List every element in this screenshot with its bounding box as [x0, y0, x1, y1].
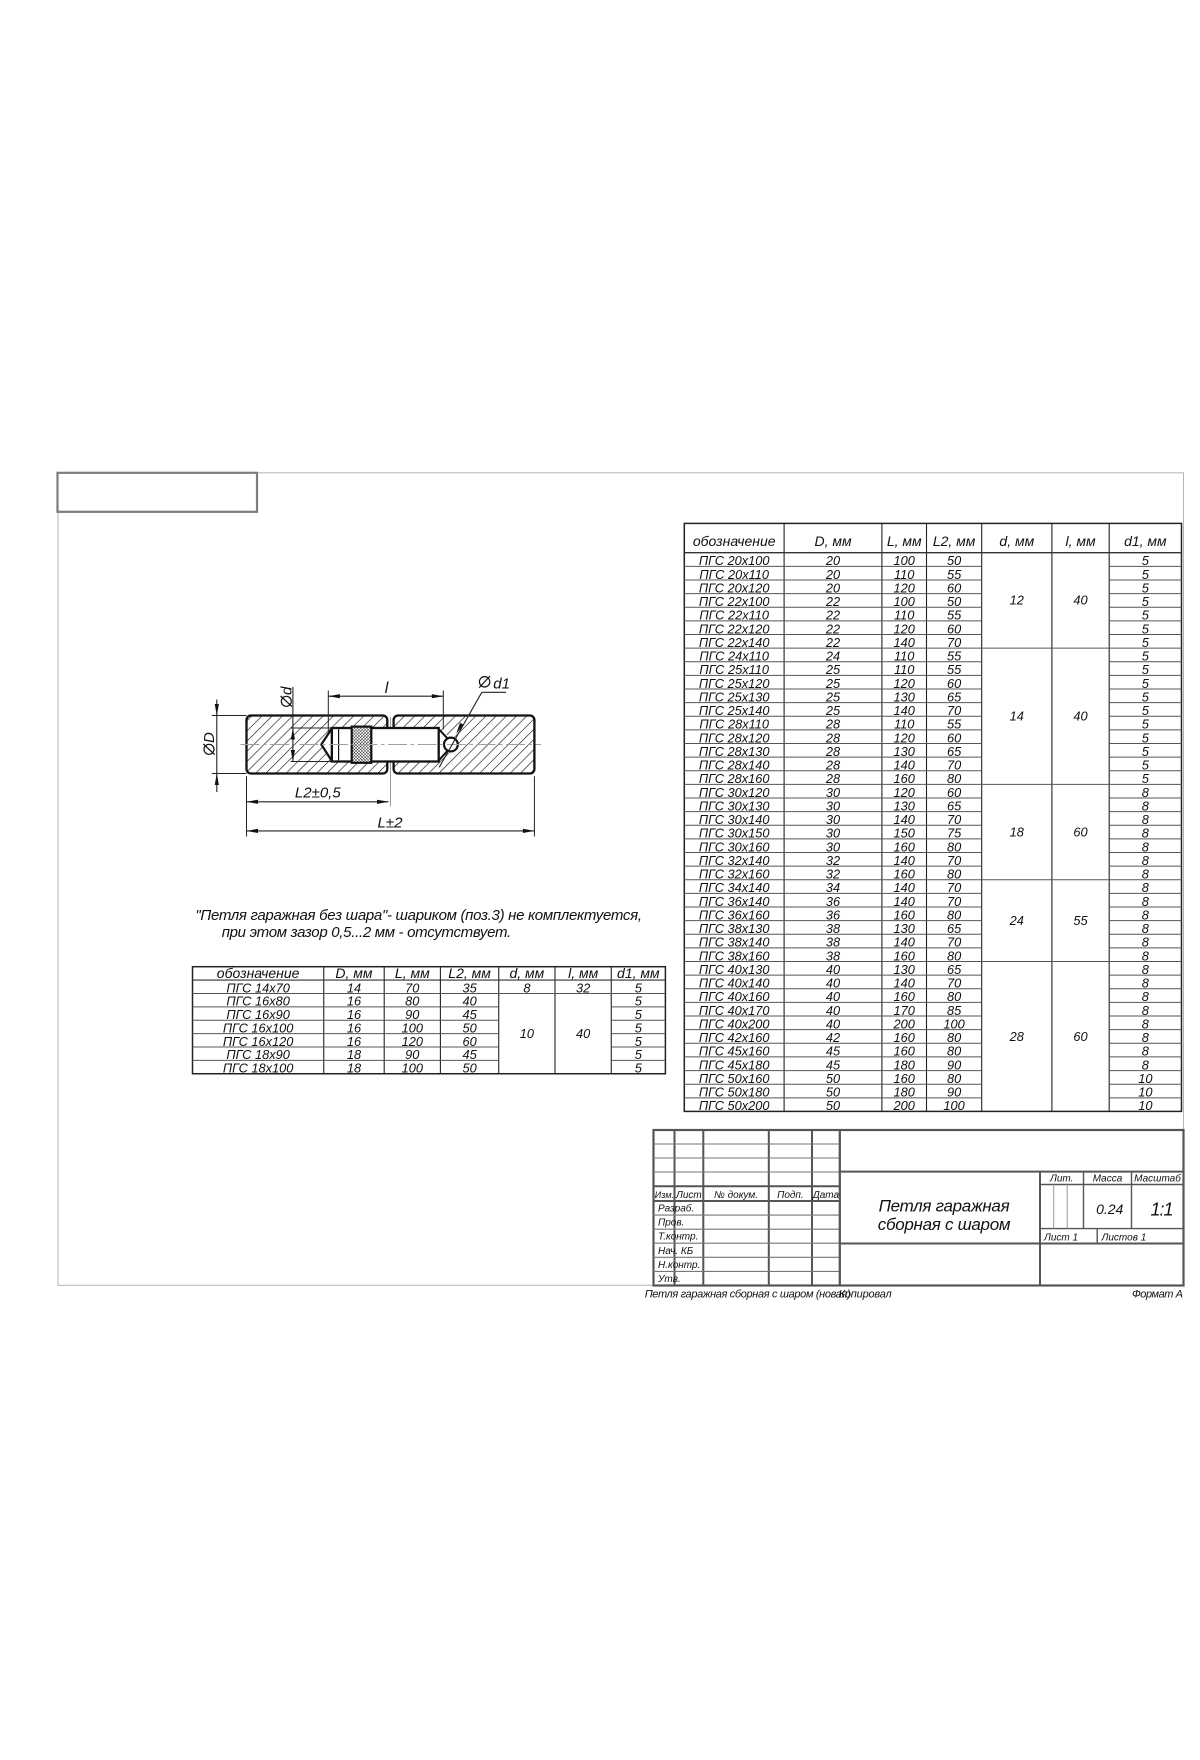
- svg-text:Петля гаражная: Петля гаражная: [879, 1196, 1010, 1215]
- svg-text:Лист: Лист: [675, 1190, 702, 1201]
- svg-text:Копировал: Копировал: [839, 1289, 892, 1301]
- svg-text:сборная с шаром: сборная с шаром: [878, 1215, 1011, 1234]
- svg-text:5: 5: [635, 1061, 643, 1076]
- svg-text:D, мм: D, мм: [335, 965, 372, 981]
- svg-text:d, мм: d, мм: [509, 965, 544, 981]
- svg-text:40: 40: [1073, 709, 1088, 724]
- svg-text:28: 28: [1009, 1029, 1025, 1044]
- svg-text:l, мм: l, мм: [1066, 533, 1096, 549]
- svg-text:обозначение: обозначение: [217, 965, 300, 981]
- svg-text:200: 200: [893, 1098, 916, 1113]
- svg-text:50: 50: [826, 1098, 841, 1113]
- svg-text:Пров.: Пров.: [658, 1218, 684, 1229]
- svg-text:24: 24: [1009, 913, 1024, 928]
- svg-text:Формат А: Формат А: [1132, 1289, 1183, 1301]
- svg-text:18: 18: [1010, 824, 1025, 839]
- svg-text:Н.контр.: Н.контр.: [658, 1260, 700, 1271]
- svg-text:l, мм: l, мм: [568, 965, 598, 981]
- svg-text:Масштаб: Масштаб: [1134, 1173, 1181, 1185]
- svg-text:Т.контр.: Т.контр.: [658, 1232, 698, 1243]
- svg-text:L2, мм: L2, мм: [933, 533, 976, 549]
- svg-text:Масса: Масса: [1093, 1174, 1123, 1185]
- svg-text:Разраб.: Разраб.: [658, 1203, 694, 1215]
- svg-text:L±2: L±2: [378, 814, 404, 831]
- svg-text:d, мм: d, мм: [999, 533, 1034, 549]
- svg-text:8: 8: [523, 980, 531, 995]
- svg-text:0.24: 0.24: [1096, 1201, 1123, 1217]
- svg-text:обозначение: обозначение: [693, 533, 776, 549]
- svg-text:100: 100: [402, 1061, 424, 1076]
- svg-text:Лит.: Лит.: [1049, 1174, 1073, 1185]
- svg-text:"Петля гаражная без шара"- шар: "Петля гаражная без шара"- шариком (поз.…: [195, 907, 641, 924]
- svg-text:Подп.: Подп.: [777, 1190, 804, 1201]
- svg-text:10: 10: [520, 1026, 535, 1041]
- svg-text:L, мм: L, мм: [887, 533, 922, 549]
- svg-text:50: 50: [462, 1061, 477, 1076]
- svg-text:Утв.: Утв.: [657, 1274, 681, 1285]
- svg-text:Петля гаражная сборная с шаром: Петля гаражная сборная с шаром (новая): [645, 1289, 851, 1301]
- svg-text:D: D: [201, 732, 218, 743]
- svg-text:при этом зазор 0,5...2 мм - от: при этом зазор 0,5...2 мм - отсутствует.: [222, 924, 511, 941]
- svg-text:18: 18: [347, 1061, 362, 1076]
- svg-text:32: 32: [576, 980, 590, 995]
- svg-text:12: 12: [1010, 593, 1024, 608]
- svg-text:60: 60: [1073, 824, 1088, 839]
- svg-text:1:1: 1:1: [1150, 1199, 1172, 1219]
- svg-text:d1: d1: [493, 676, 510, 693]
- svg-text:l: l: [385, 680, 389, 697]
- svg-text:Лист 1: Лист 1: [1043, 1233, 1078, 1244]
- svg-text:Листов 1: Листов 1: [1101, 1233, 1147, 1244]
- svg-text:40: 40: [576, 1026, 591, 1041]
- svg-text:60: 60: [1073, 1029, 1088, 1044]
- svg-text:ПГС 50x200: ПГС 50x200: [699, 1098, 770, 1113]
- svg-text:L2±0,5: L2±0,5: [295, 784, 341, 801]
- svg-text:ПГС 18x100: ПГС 18x100: [223, 1061, 294, 1076]
- svg-text:d1, мм: d1, мм: [617, 965, 660, 981]
- svg-text:40: 40: [1073, 593, 1088, 608]
- svg-text:55: 55: [1073, 913, 1088, 928]
- svg-text:d1, мм: d1, мм: [1124, 533, 1167, 549]
- svg-text:№ докум.: № докум.: [714, 1190, 758, 1201]
- svg-text:L, мм: L, мм: [395, 965, 430, 981]
- svg-text:Изм.: Изм.: [655, 1190, 674, 1200]
- svg-text:Дата: Дата: [812, 1190, 840, 1201]
- svg-text:Нач. КБ: Нач. КБ: [658, 1246, 694, 1257]
- svg-text:14: 14: [1010, 709, 1024, 724]
- svg-text:10: 10: [1138, 1098, 1153, 1113]
- svg-text:d: d: [279, 686, 296, 695]
- svg-text:L2, мм: L2, мм: [448, 965, 491, 981]
- svg-text:100: 100: [943, 1098, 965, 1113]
- svg-text:D, мм: D, мм: [814, 533, 851, 549]
